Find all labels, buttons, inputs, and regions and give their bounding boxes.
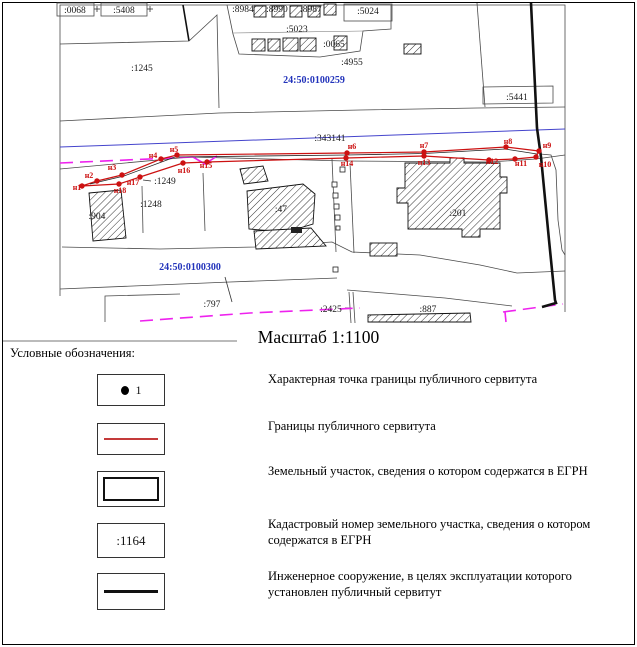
parcel-number-label: :0065 bbox=[323, 40, 345, 50]
parcel-number-label: :5408 bbox=[113, 6, 135, 16]
cadastral-quarter-label: 24:50:0100300 bbox=[159, 262, 221, 273]
red-line-icon bbox=[104, 438, 158, 440]
cadastral-map: :0068:5408:1245:8984:8990:8987:5023:5024… bbox=[0, 0, 637, 647]
parcel-number-label: :904 bbox=[89, 212, 106, 222]
servitude-point-label: н13 bbox=[418, 158, 431, 167]
legend-symbol-point: 1 bbox=[97, 374, 165, 406]
legend-title: Условные обозначения: bbox=[10, 346, 135, 361]
parcel-number-label: :1245 bbox=[131, 64, 153, 74]
servitude-point-dot bbox=[533, 154, 538, 159]
servitude-point-label: н7 bbox=[420, 141, 429, 150]
parcel-number-label: :201 bbox=[450, 209, 467, 219]
servitude-point-label: н8 bbox=[504, 137, 513, 146]
cadastral-number-sample: :1164 bbox=[116, 533, 145, 549]
document-page: :0068:5408:1245:8984:8990:8987:5023:5024… bbox=[0, 0, 637, 647]
parcel-rect-icon bbox=[103, 477, 159, 501]
parcel-number-label: :343141 bbox=[314, 134, 345, 144]
servitude-point-label: н16 bbox=[178, 166, 191, 175]
legend-label-cadastral-number: Кадастровый номер земельного участка, св… bbox=[268, 517, 620, 548]
parcel-number-label: :1248 bbox=[140, 200, 162, 210]
servitude-point-dot bbox=[94, 178, 99, 183]
servitude-point-label: н11 bbox=[515, 159, 527, 168]
legend-symbol-parcel bbox=[97, 471, 165, 507]
legend-label-servitude-line: Границы публичного сервитута bbox=[268, 419, 620, 435]
parcel-number-label: :8990 bbox=[266, 5, 288, 15]
parcel-number-label: :47 bbox=[275, 205, 287, 215]
servitude-point-label: н9 bbox=[543, 141, 552, 150]
parcel-number-label: :5441 bbox=[506, 93, 528, 103]
point-marker-icon bbox=[121, 386, 129, 395]
road-line-blue bbox=[60, 129, 565, 147]
servitude-point-label: н15 bbox=[200, 161, 213, 170]
servitude-point-label: н17 bbox=[127, 178, 140, 187]
parcel-number-label: :887 bbox=[420, 305, 437, 315]
parcel-number-label: :5024 bbox=[357, 7, 379, 17]
servitude-point-label: н5 bbox=[170, 145, 179, 154]
servitude-point-label: н3 bbox=[108, 163, 117, 172]
servitude-point-dot bbox=[119, 172, 124, 177]
servitude-point-label: н6 bbox=[348, 142, 357, 151]
legend-symbol-servitude-line bbox=[97, 423, 165, 455]
parcel-number-label: :5023 bbox=[286, 25, 308, 35]
servitude-point-label: н2 bbox=[85, 171, 94, 180]
servitude-point-label: н18 bbox=[114, 186, 127, 195]
parcel-number-label: :2425 bbox=[320, 305, 342, 315]
servitude-point-label: н10 bbox=[539, 160, 552, 169]
map-scale-label: Масштаб 1:1100 bbox=[0, 327, 637, 348]
servitude-point-label: н14 bbox=[341, 159, 354, 168]
legend-symbol-engineering bbox=[97, 573, 165, 610]
servitude-point-dot bbox=[180, 160, 185, 165]
servitude-point-label: н12 bbox=[486, 157, 499, 166]
parcel-number-label: :1249 bbox=[154, 177, 176, 187]
cadastral-quarter-label: 24:50:0100259 bbox=[283, 75, 345, 86]
parcel-number-label: :4955 bbox=[341, 58, 363, 68]
parcel-number-label: :797 bbox=[204, 300, 221, 310]
parcel-number-label: :8987 bbox=[300, 5, 322, 15]
servitude-point-dot bbox=[344, 150, 349, 155]
legend-symbol-cadastral-number: :1164 bbox=[97, 523, 165, 558]
servitude-point-dot bbox=[536, 148, 541, 153]
legend-label-point: Характерная точка границы публичного сер… bbox=[268, 372, 620, 388]
parcel-number-label: :8984 bbox=[232, 5, 254, 15]
servitude-point-label: н4 bbox=[149, 151, 158, 160]
legend-label-parcel: Земельный участок, сведения о котором со… bbox=[268, 464, 620, 480]
point-sample-number: 1 bbox=[136, 383, 142, 398]
parcel-number-label: :0068 bbox=[64, 6, 86, 16]
legend-label-engineering: Инженерное сооружение, в целях эксплуата… bbox=[268, 569, 620, 600]
servitude-point-label: н1 bbox=[73, 183, 82, 192]
servitude-point-dot bbox=[158, 156, 163, 161]
black-line-icon bbox=[104, 590, 158, 593]
